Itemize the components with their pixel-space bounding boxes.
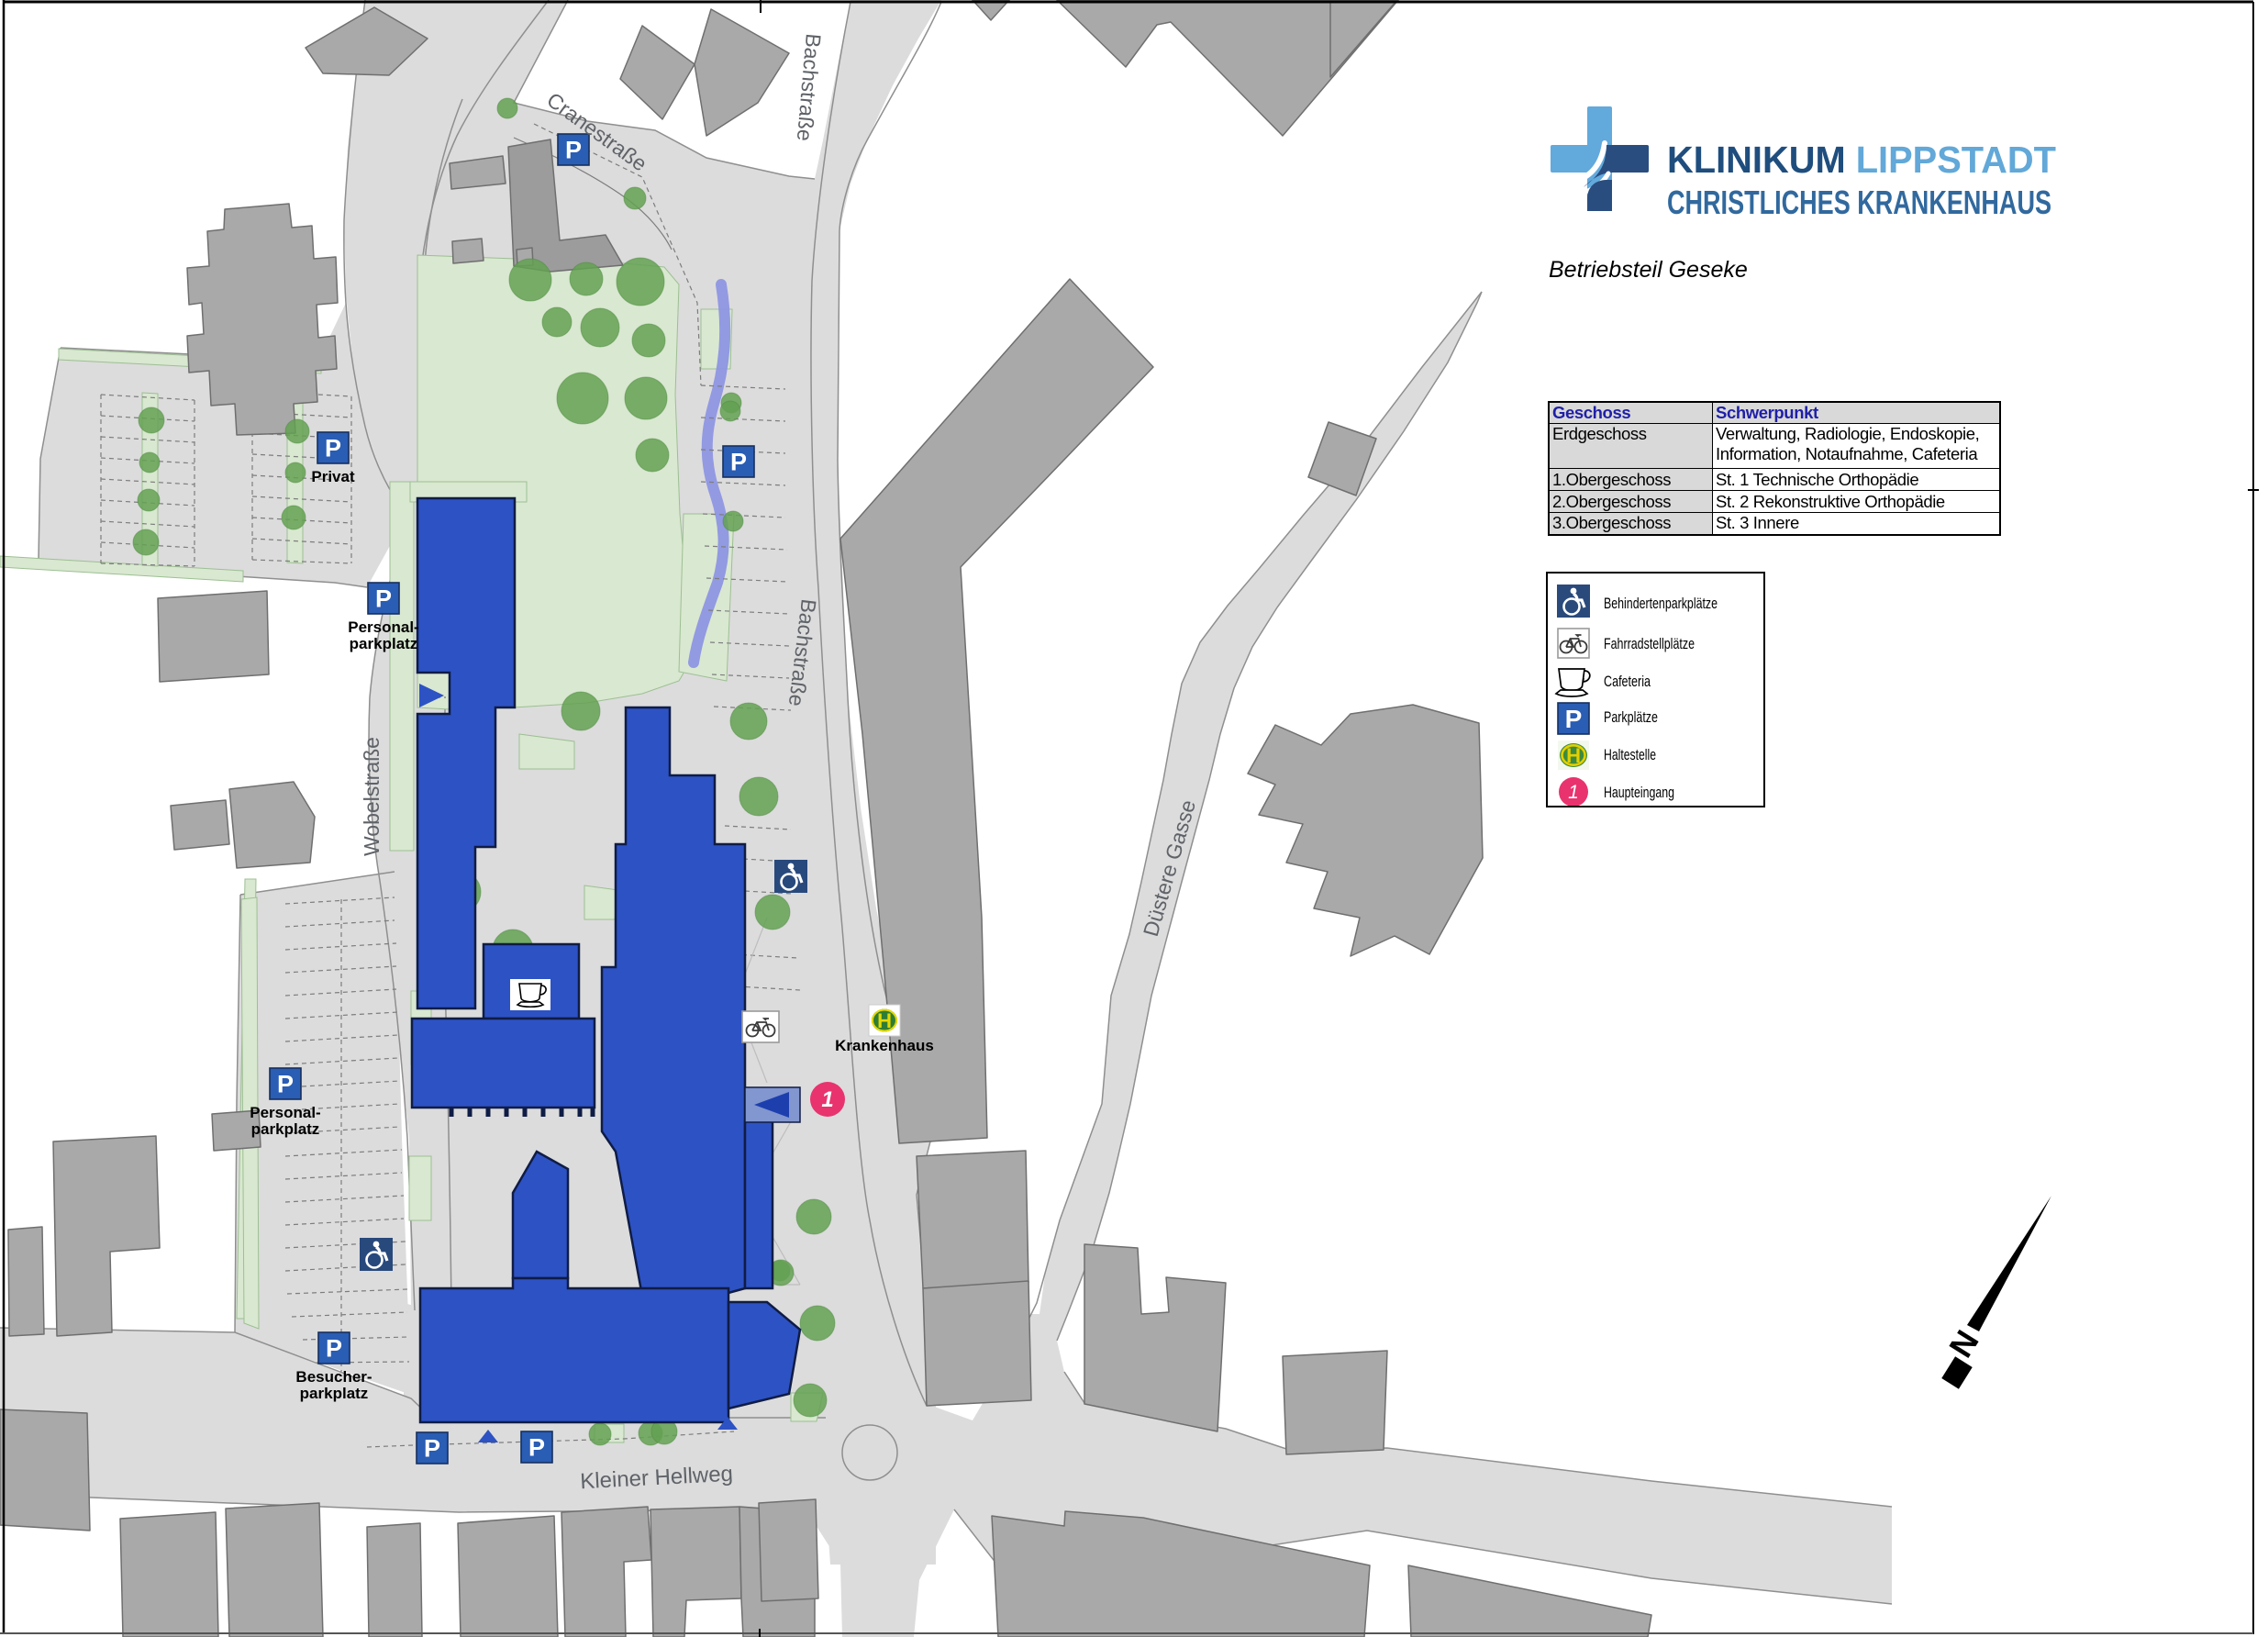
svg-text:KLINIKUM LIPPSTADT: KLINIKUM LIPPSTADT [1667,139,2056,181]
svg-text:Haltestelle: Haltestelle [1604,746,1656,763]
svg-text:Cafeteria: Cafeteria [1604,673,1651,690]
svg-text:H: H [1566,744,1581,767]
svg-text:P: P [1565,705,1583,733]
svg-text:Personal-: Personal- [250,1104,320,1121]
svg-text:1: 1 [821,1087,833,1112]
svg-text:Wobelstraße: Wobelstraße [360,737,384,856]
svg-text:Krankenhaus: Krankenhaus [835,1037,934,1054]
svg-text:Fahrradstellplätze: Fahrradstellplätze [1604,635,1695,652]
svg-text:CHRISTLICHES KRANKENHAUS: CHRISTLICHES KRANKENHAUS [1667,184,2051,221]
svg-text:parkplatz: parkplatz [251,1120,320,1138]
svg-text:Privat: Privat [311,468,355,485]
svg-text:Behindertenparkplätze: Behindertenparkplätze [1604,595,1718,612]
svg-text:Bachstraße: Bachstraße [793,33,826,142]
svg-text:1: 1 [1568,782,1579,803]
svg-text:parkplatz: parkplatz [350,635,418,652]
svg-text:Parkplätze: Parkplätze [1604,708,1658,726]
svg-text:parkplatz: parkplatz [300,1385,369,1402]
svg-text:Besucher-: Besucher- [295,1368,372,1386]
svg-text:Personal-: Personal- [348,618,418,636]
svg-text:Haupteingang: Haupteingang [1604,784,1674,801]
